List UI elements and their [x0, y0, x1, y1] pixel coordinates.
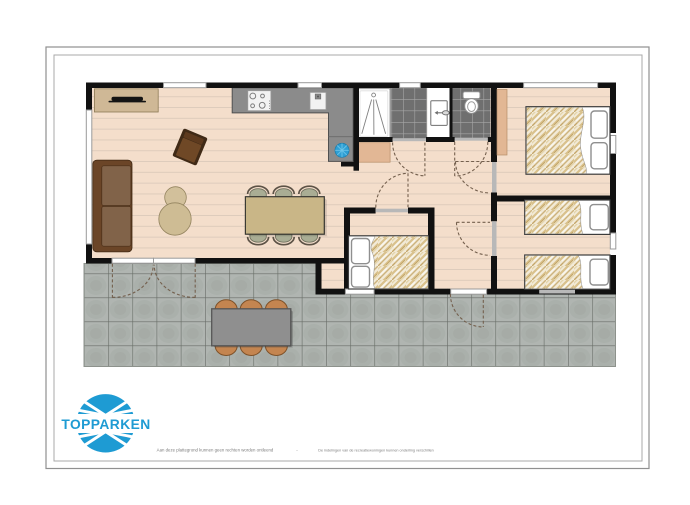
svg-text:Aan deze plattegrond kunnen ge: Aan deze plattegrond kunnen geen rechten… — [157, 448, 274, 453]
svg-text:De indelingen van de recreatie: De indelingen van de recreatiewoningen k… — [318, 448, 434, 452]
svg-text:TOPPARKEN: TOPPARKEN — [61, 417, 150, 432]
